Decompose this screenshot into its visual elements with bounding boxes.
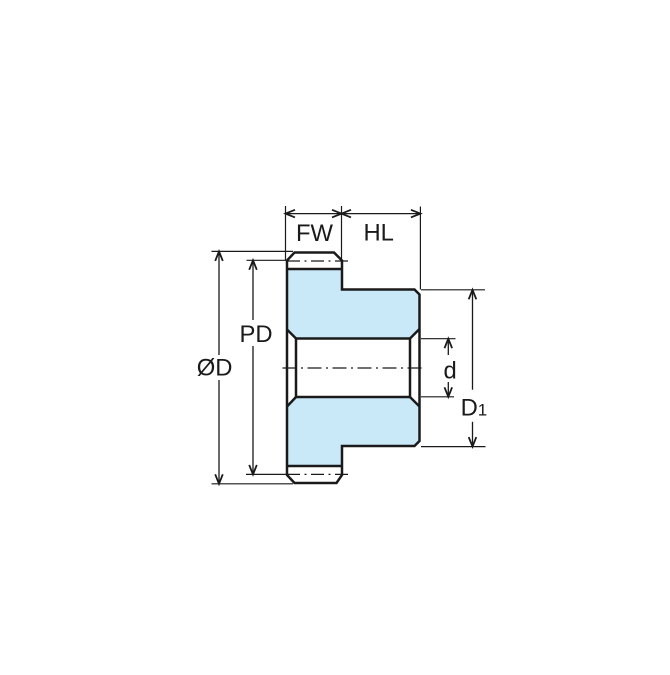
svg-text:FW: FW: [296, 220, 334, 247]
svg-text:HL: HL: [363, 219, 393, 246]
svg-text:D1: D1: [461, 394, 488, 421]
svg-text:d: d: [443, 358, 456, 385]
svg-text:ØD: ØD: [197, 355, 233, 382]
svg-text:PD: PD: [239, 321, 272, 348]
